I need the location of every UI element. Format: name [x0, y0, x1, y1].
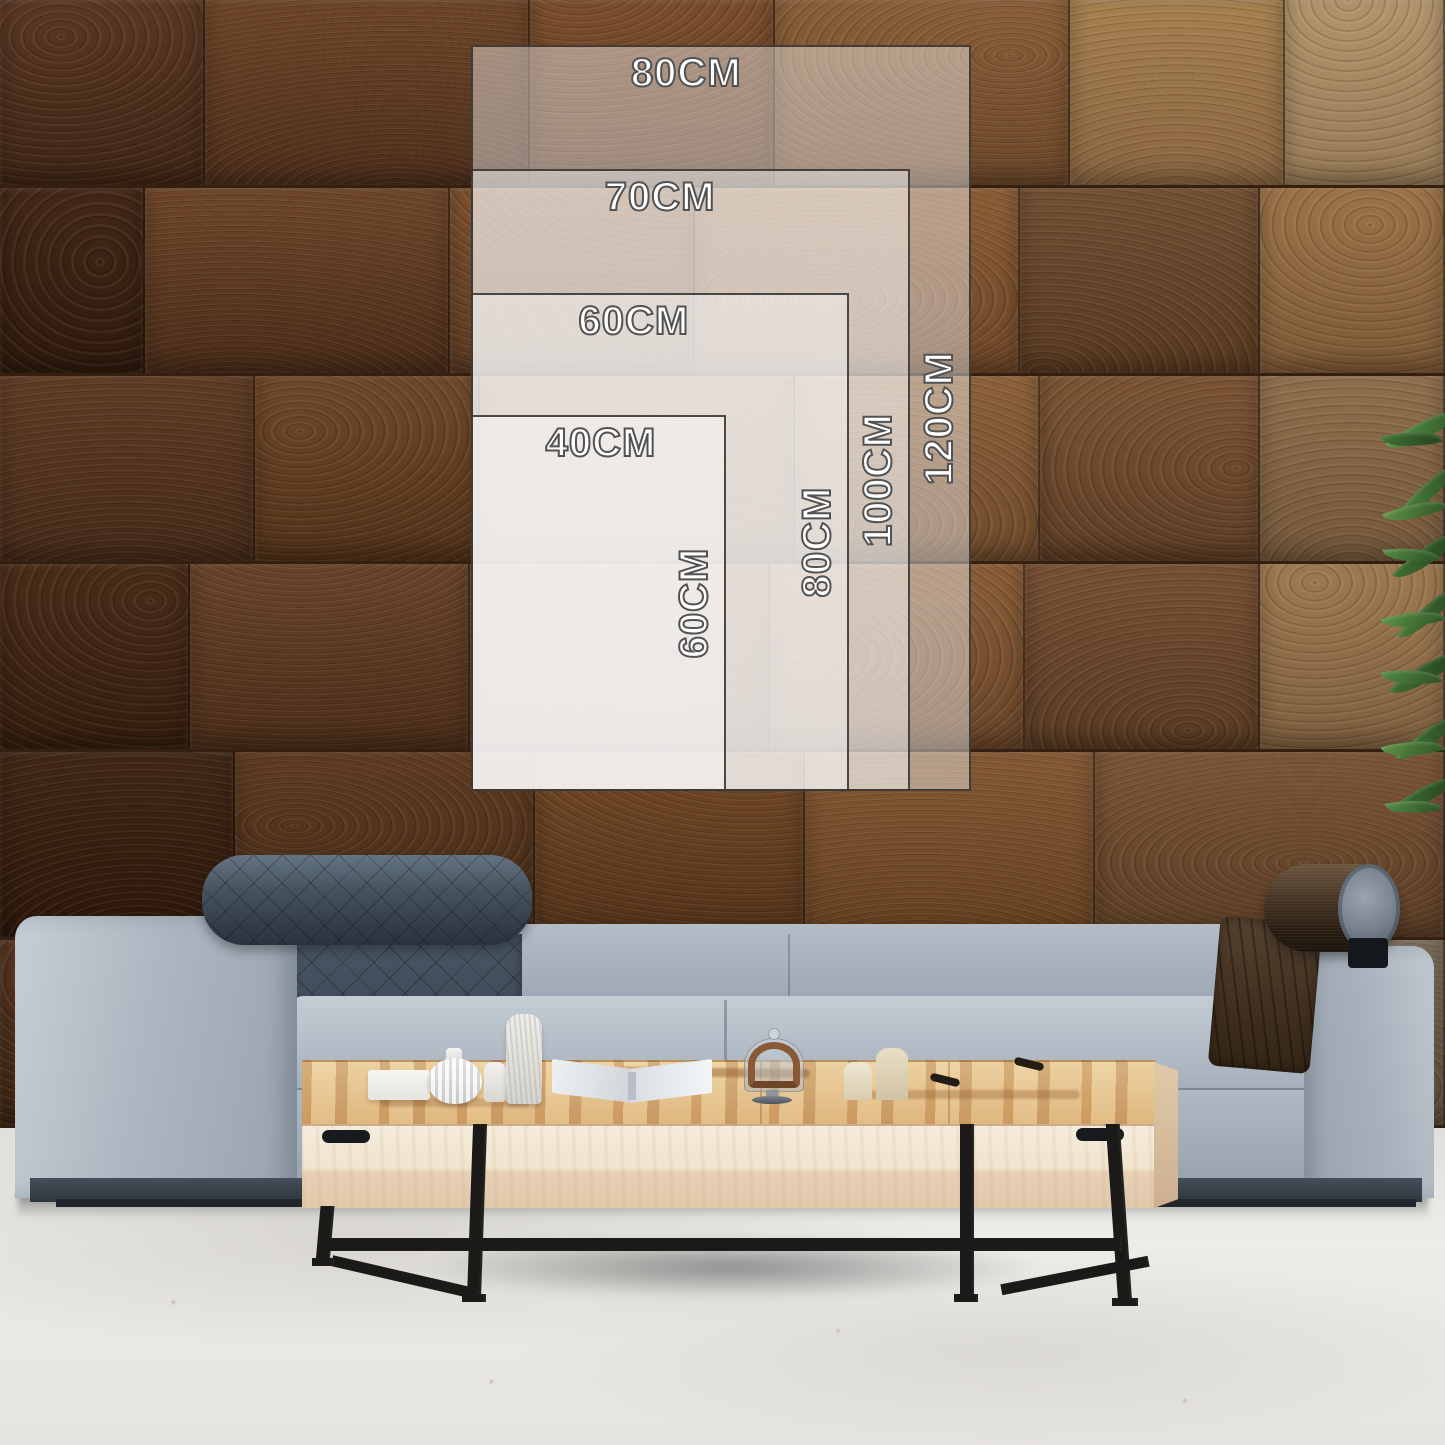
size-width-label: 40CM [546, 423, 657, 463]
living-room-size-guide-scene: 80CM 120CM 70CM 100CM 60CM 80CM 40CM 60C… [0, 0, 1445, 1445]
size-width-label: 80CM [631, 53, 742, 93]
size-rectangle-40x60: 40CM 60CM [471, 415, 726, 791]
size-guide-overlay: 80CM 120CM 70CM 100CM 60CM 80CM 40CM 60C… [0, 0, 1445, 1445]
size-width-label: 70CM [605, 177, 716, 217]
size-height-label: 80CM [797, 457, 837, 627]
size-height-label: 100CM [858, 395, 898, 565]
size-width-label: 60CM [578, 301, 689, 341]
size-height-label: 60CM [674, 518, 714, 688]
size-height-label: 120CM [919, 333, 959, 503]
